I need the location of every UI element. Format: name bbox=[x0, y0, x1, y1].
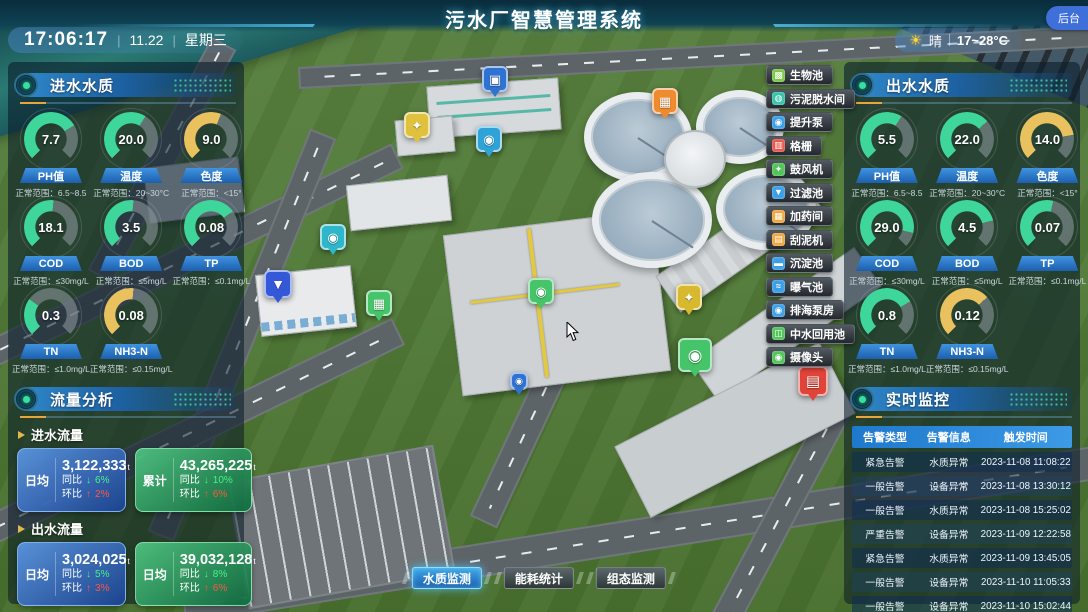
section-emblem-icon bbox=[850, 387, 874, 411]
weather-condition: 晴 bbox=[929, 31, 942, 50]
facility-label: 格栅 bbox=[790, 138, 812, 154]
flow-card: 日均3,122,333t同比↓6%环比↑2% bbox=[17, 448, 126, 512]
camera-icon[interactable]: ◉ bbox=[678, 338, 712, 372]
divider bbox=[949, 34, 950, 46]
column-header-alarm-info: 告警信息 bbox=[918, 429, 980, 445]
grille-icon: ▥ bbox=[772, 139, 785, 152]
sea-outfall-pump-icon: ◉ bbox=[772, 304, 785, 317]
facility-label: 中水回用池 bbox=[790, 326, 845, 342]
gauge-value: 9.0 bbox=[184, 112, 238, 166]
reclaimed-water-icon: ◫ bbox=[772, 327, 785, 340]
flow-card-value: 39,032,128t bbox=[180, 552, 256, 568]
section-emblem-icon bbox=[14, 73, 38, 97]
facility-button-刮泥机[interactable]: ▤刮泥机 bbox=[766, 230, 833, 250]
alarm-row[interactable]: 严重告警设备异常2023-11-09 12:22:58 bbox=[852, 524, 1072, 544]
gauge-range: 正常范围：≤0.1mg/L bbox=[173, 275, 251, 287]
alarm-row[interactable]: 一般告警设备异常2023-11-10 15:02:44 bbox=[852, 596, 1072, 612]
facility-label: 摄像头 bbox=[790, 349, 823, 365]
section-underline bbox=[20, 416, 236, 418]
gauge-value: 0.3 bbox=[24, 288, 78, 342]
sun-icon: ☀ bbox=[909, 32, 922, 49]
flow-group-label: 出水流量 bbox=[18, 519, 234, 538]
flow-group-label: 进水流量 bbox=[18, 425, 234, 444]
flow-yoy: 同比↓5% bbox=[62, 568, 130, 582]
gauge-label: 温度 bbox=[936, 168, 998, 183]
divider: | bbox=[117, 33, 120, 48]
flow-card-tag: 日均 bbox=[25, 472, 49, 489]
section-title: 进水水质 bbox=[50, 75, 114, 96]
pump-icon[interactable]: ◉ bbox=[476, 126, 502, 152]
clock-bar: 17:06:17 | 11.22 | 星期三 bbox=[8, 27, 243, 53]
gauge-label: PH值 bbox=[856, 168, 918, 183]
gauge-value: 0.07 bbox=[1020, 200, 1074, 254]
gauge-label: NH3-N bbox=[936, 344, 998, 359]
gauge-value: 18.1 bbox=[24, 200, 78, 254]
sedimentation-icon: ▬ bbox=[772, 257, 785, 270]
facility-label: 鼓风机 bbox=[790, 161, 823, 177]
facility-button-中水回用池[interactable]: ◫中水回用池 bbox=[766, 324, 855, 344]
section-title: 实时监控 bbox=[886, 389, 950, 410]
gauge-label: COD bbox=[20, 256, 82, 271]
bottom-tabs: 水质监测能耗统计组态监测 bbox=[412, 567, 666, 589]
building bbox=[346, 175, 452, 231]
gauge-TN: 0.8TN正常范围：≤1.0mg/L bbox=[848, 288, 926, 376]
column-header-trigger-time: 触发时间 bbox=[980, 429, 1072, 445]
gauge-TP: 0.08TP正常范围：≤0.1mg/L bbox=[173, 200, 251, 288]
alarm-row[interactable]: 紧急告警水质异常2023-11-09 13:45:05 bbox=[852, 548, 1072, 568]
facility-label: 加药间 bbox=[790, 208, 823, 224]
gauge-label: 色度 bbox=[180, 168, 242, 183]
scraper-icon[interactable]: ▤ bbox=[798, 366, 828, 396]
flow-mom: 环比↑3% bbox=[62, 582, 130, 596]
backend-button[interactable]: 后台 bbox=[1046, 6, 1088, 30]
facility-button-生物池[interactable]: ▩生物池 bbox=[766, 65, 833, 85]
facility-button-曝气池[interactable]: ≈曝气池 bbox=[766, 277, 833, 297]
gauge-value: 22.0 bbox=[940, 112, 994, 166]
flow-card-tag: 日均 bbox=[143, 566, 167, 583]
clock-date: 11.22 bbox=[129, 32, 163, 48]
facility-button-污泥脱水间[interactable]: ◍污泥脱水间 bbox=[766, 89, 855, 109]
facility-label: 过滤池 bbox=[790, 185, 823, 201]
flow-card-value: 43,265,225t bbox=[180, 458, 256, 474]
gauge-TP: 0.07TP正常范围：≤0.1mg/L bbox=[1009, 200, 1087, 288]
section-title: 出水水质 bbox=[886, 75, 950, 96]
gauge-value: 5.5 bbox=[860, 112, 914, 166]
gauge-value: 14.0 bbox=[1020, 112, 1074, 166]
gauge-NH3-N: 0.12NH3-N正常范围：≤0.15mg/L bbox=[926, 288, 1009, 376]
flow-yoy: 同比↓8% bbox=[180, 568, 256, 582]
facility-button-摄像头[interactable]: ◉摄像头 bbox=[766, 347, 833, 367]
dosing-room-icon: ▦ bbox=[772, 210, 785, 223]
tab-组态监测[interactable]: 组态监测 bbox=[596, 567, 666, 589]
filter-pool-icon: ▼ bbox=[772, 186, 785, 199]
alarm-table-body: 紧急告警水质异常2023-11-08 11:08:22一般告警设备异常2023-… bbox=[844, 452, 1080, 612]
gauge-label: BOD bbox=[100, 256, 162, 271]
blower-icon: ✦ bbox=[772, 163, 785, 176]
gauge-色度: 14.0色度正常范围：<15° bbox=[1009, 112, 1087, 200]
facility-label: 沉淀池 bbox=[790, 255, 823, 271]
flow-mom: 环比↑6% bbox=[180, 582, 256, 596]
facility-label: 提升泵 bbox=[790, 114, 823, 130]
gauge-BOD: 3.5BOD正常范围：≤5mg/L bbox=[90, 200, 173, 288]
section-header-outlet-quality: 出水水质 bbox=[850, 70, 1074, 100]
flow-mom: 环比↑2% bbox=[62, 488, 130, 502]
flow-card: 日均3,024,025t同比↓5%环比↑3% bbox=[17, 542, 126, 606]
alarm-row[interactable]: 一般告警水质异常2023-11-08 15:25:02 bbox=[852, 500, 1072, 520]
flow-yoy: 同比↓6% bbox=[62, 474, 130, 488]
alarm-row[interactable]: 一般告警设备异常2023-11-10 11:05:33 bbox=[852, 572, 1072, 592]
weather-temp-range: 17~28°C bbox=[957, 33, 1008, 48]
facility-button-提升泵[interactable]: ◉提升泵 bbox=[766, 112, 833, 132]
dosing-icon[interactable]: ▦ bbox=[652, 88, 678, 114]
gauge-value: 20.0 bbox=[104, 112, 158, 166]
gauge-PH值: 7.7PH值正常范围：6.5~8.5 bbox=[12, 112, 90, 200]
monitor-icon[interactable]: ▣ bbox=[482, 66, 508, 92]
aeration-icon: ≈ bbox=[772, 280, 785, 293]
section-header-inlet-quality: 进水水质 bbox=[14, 70, 238, 100]
gauge-value: 7.7 bbox=[24, 112, 78, 166]
lift-pump-icon: ◉ bbox=[772, 116, 785, 129]
control-tower bbox=[664, 130, 726, 188]
clock-weekday: 星期三 bbox=[185, 30, 227, 50]
facility-label: 曝气池 bbox=[790, 279, 823, 295]
flow-card: 累计43,265,225t同比↓10%环比↑6% bbox=[135, 448, 252, 512]
clock-time: 17:06:17 bbox=[24, 29, 108, 51]
gauge-温度: 22.0温度正常范围：20~30°C bbox=[926, 112, 1009, 200]
flow-card-tag: 累计 bbox=[143, 472, 167, 489]
fan-icon[interactable]: ✦ bbox=[676, 284, 702, 310]
divider: | bbox=[172, 33, 175, 48]
facility-button-沉淀池[interactable]: ▬沉淀池 bbox=[766, 253, 833, 273]
gauge-label: TP bbox=[1016, 256, 1078, 271]
gauge-range: 正常范围：≤0.15mg/L bbox=[926, 363, 1009, 375]
fan-icon[interactable]: ✦ bbox=[404, 112, 430, 138]
facility-label: 生物池 bbox=[790, 67, 823, 83]
facility-button-过滤池[interactable]: ▼过滤池 bbox=[766, 183, 833, 203]
gauge-range: 正常范围：≤1.0mg/L bbox=[848, 363, 926, 375]
facility-label: 排海泵房 bbox=[790, 302, 834, 318]
flow-card-value: 3,122,333t bbox=[62, 458, 130, 474]
alarm-row[interactable]: 一般告警设备异常2023-11-08 13:30:12 bbox=[852, 476, 1072, 496]
gauge-label: BOD bbox=[936, 256, 998, 271]
gauge-label: 色度 bbox=[1016, 168, 1078, 183]
gauge-label: TP bbox=[180, 256, 242, 271]
dashboard: ▣✦◉▦◉▼▦◉✦◉▤◉ 污水厂智慧管理系统 17:06:17 | 11.22 … bbox=[0, 0, 1088, 612]
sludge-dewatering-icon: ◍ bbox=[772, 92, 785, 105]
gauge-温度: 20.0温度正常范围：20~30°C bbox=[90, 112, 173, 200]
facility-button-加药间[interactable]: ▦加药间 bbox=[766, 206, 833, 226]
section-header-flow-analysis: 流量分析 bbox=[14, 384, 238, 414]
outlet-gauges: 5.5PH值正常范围：6.5~8.522.0温度正常范围：20~30°C14.0… bbox=[844, 108, 1080, 376]
flow-groups: 进水流量日均3,122,333t同比↓6%环比↑2%累计43,265,225t同… bbox=[8, 425, 244, 606]
facility-button-格栅[interactable]: ▥格栅 bbox=[766, 136, 822, 156]
gauge-label: NH3-N bbox=[100, 344, 162, 359]
gauge-value: 0.8 bbox=[860, 288, 914, 342]
dosing-icon[interactable]: ▦ bbox=[366, 290, 392, 316]
gauge-label: TN bbox=[20, 344, 82, 359]
mud-scraper-icon: ▤ bbox=[772, 233, 785, 246]
gauge-NH3-N: 0.08NH3-N正常范围：≤0.15mg/L bbox=[90, 288, 173, 376]
gauge-value: 29.0 bbox=[860, 200, 914, 254]
gauge-PH值: 5.5PH值正常范围：6.5~8.5 bbox=[848, 112, 926, 200]
gauge-value: 0.08 bbox=[184, 200, 238, 254]
flow-yoy: 同比↓10% bbox=[180, 474, 256, 488]
gauge-label: 温度 bbox=[100, 168, 162, 183]
gauge-range: 正常范围：≤0.1mg/L bbox=[1009, 275, 1087, 287]
pump-icon[interactable]: ◉ bbox=[320, 224, 346, 250]
facility-label: 污泥脱水间 bbox=[790, 91, 845, 107]
gauge-label: COD bbox=[856, 256, 918, 271]
gauge-BOD: 4.5BOD正常范围：≤5mg/L bbox=[926, 200, 1009, 288]
section-title: 流量分析 bbox=[50, 389, 114, 410]
column-header-alarm-type: 告警类型 bbox=[852, 429, 918, 445]
gauge-value: 0.12 bbox=[940, 288, 994, 342]
section-underline bbox=[20, 102, 236, 104]
gauge-label: TN bbox=[856, 344, 918, 359]
pump-icon[interactable]: ◉ bbox=[510, 372, 528, 390]
gauge-COD: 29.0COD正常范围：≤30mg/L bbox=[848, 200, 926, 288]
tab-能耗统计[interactable]: 能耗统计 bbox=[504, 567, 574, 589]
alarm-row[interactable]: 紧急告警水质异常2023-11-08 11:08:22 bbox=[852, 452, 1072, 472]
section-underline bbox=[856, 102, 1072, 104]
section-header-monitoring: 实时监控 bbox=[850, 384, 1074, 414]
gauge-label: PH值 bbox=[20, 168, 82, 183]
flow-card-value: 3,024,025t bbox=[62, 552, 130, 568]
gauge-TN: 0.3TN正常范围：≤1.0mg/L bbox=[12, 288, 90, 376]
inlet-gauges: 7.7PH值正常范围：6.5~8.520.0温度正常范围：20~30°C9.0色… bbox=[8, 108, 244, 376]
funnel-icon[interactable]: ▼ bbox=[264, 270, 292, 298]
gauge-value: 3.5 bbox=[104, 200, 158, 254]
alarm-table-header: 告警类型 告警信息 触发时间 bbox=[852, 426, 1072, 448]
gauge-value: 0.08 bbox=[104, 288, 158, 342]
flow-mom: 环比↑6% bbox=[180, 488, 256, 502]
gauge-value: 4.5 bbox=[940, 200, 994, 254]
flow-card-tag: 日均 bbox=[25, 566, 49, 583]
gauge-range: 正常范围：≤0.15mg/L bbox=[90, 363, 173, 375]
outlet-panel: 出水水质 5.5PH值正常范围：6.5~8.522.0温度正常范围：20~30°… bbox=[844, 62, 1080, 604]
facility-button-list: ▩生物池◍污泥脱水间◉提升泵▥格栅✦鼓风机▼过滤池▦加药间▤刮泥机▬沉淀池≈曝气… bbox=[766, 65, 855, 367]
tab-水质监测[interactable]: 水质监测 bbox=[412, 567, 482, 589]
inlet-panel: 进水水质 7.7PH值正常范围：6.5~8.520.0温度正常范围：20~30°… bbox=[8, 62, 244, 604]
camera-icon: ◉ bbox=[772, 351, 785, 364]
facility-button-鼓风机[interactable]: ✦鼓风机 bbox=[766, 159, 833, 179]
section-underline bbox=[856, 416, 1072, 418]
gauge-COD: 18.1COD正常范围：≤30mg/L bbox=[12, 200, 90, 288]
bio-pool-icon: ▩ bbox=[772, 69, 785, 82]
flow-card: 日均39,032,128t同比↓8%环比↑6% bbox=[135, 542, 252, 606]
gauge-range: 正常范围：≤1.0mg/L bbox=[12, 363, 90, 375]
section-emblem-icon bbox=[14, 387, 38, 411]
camera-icon[interactable]: ◉ bbox=[528, 278, 554, 304]
gauge-色度: 9.0色度正常范围：<15° bbox=[173, 112, 251, 200]
facility-button-排海泵房[interactable]: ◉排海泵房 bbox=[766, 300, 844, 320]
facility-label: 刮泥机 bbox=[790, 232, 823, 248]
weather-bar: ☀ 晴 17~28°C bbox=[895, 28, 1022, 52]
